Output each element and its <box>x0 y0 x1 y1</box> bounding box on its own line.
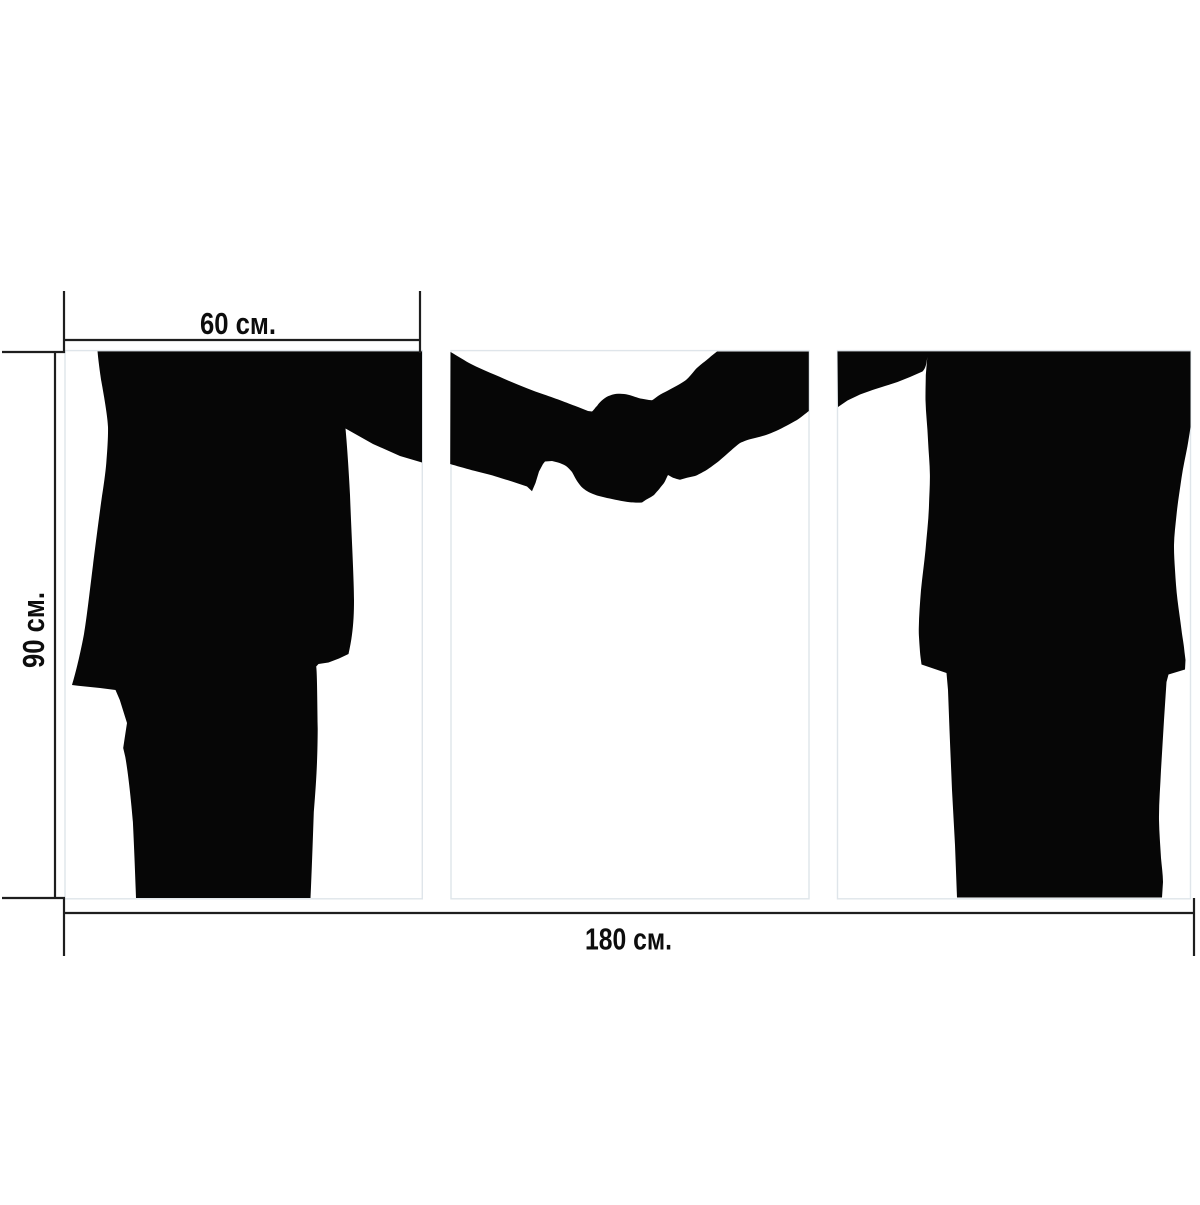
svg-text:90 см.: 90 см. <box>17 592 51 668</box>
svg-text:60 см.: 60 см. <box>200 307 276 341</box>
svg-text:180 см.: 180 см. <box>585 923 672 957</box>
